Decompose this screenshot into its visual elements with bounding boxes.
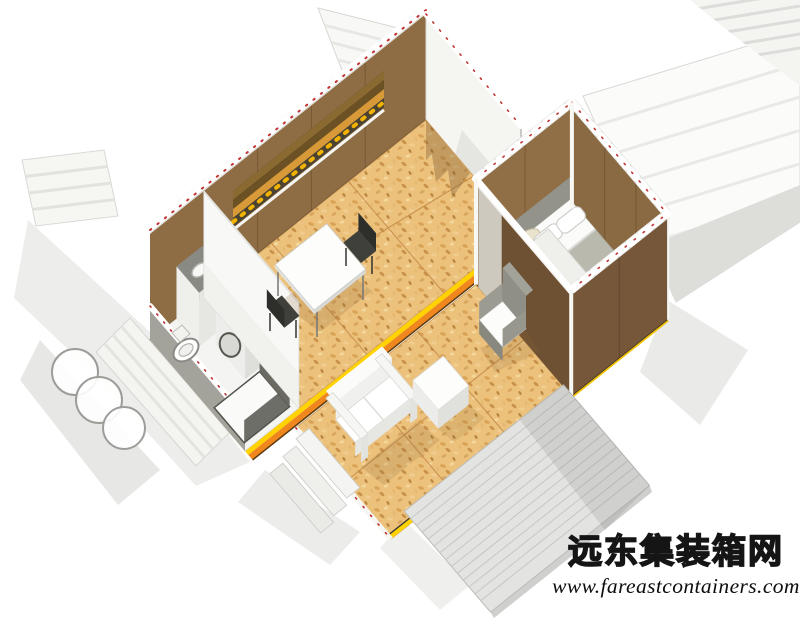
watermark: 远东集装箱网 www.fareastcontainers.com <box>552 534 800 599</box>
exploded-wall-panel-left <box>22 150 118 226</box>
watermark-url: www.fareastcontainers.com <box>552 574 800 599</box>
watermark-site-name: 远东集装箱网 <box>552 534 800 571</box>
container-house-rendering: 远东集装箱网 www.fareastcontainers.com <box>0 0 800 630</box>
